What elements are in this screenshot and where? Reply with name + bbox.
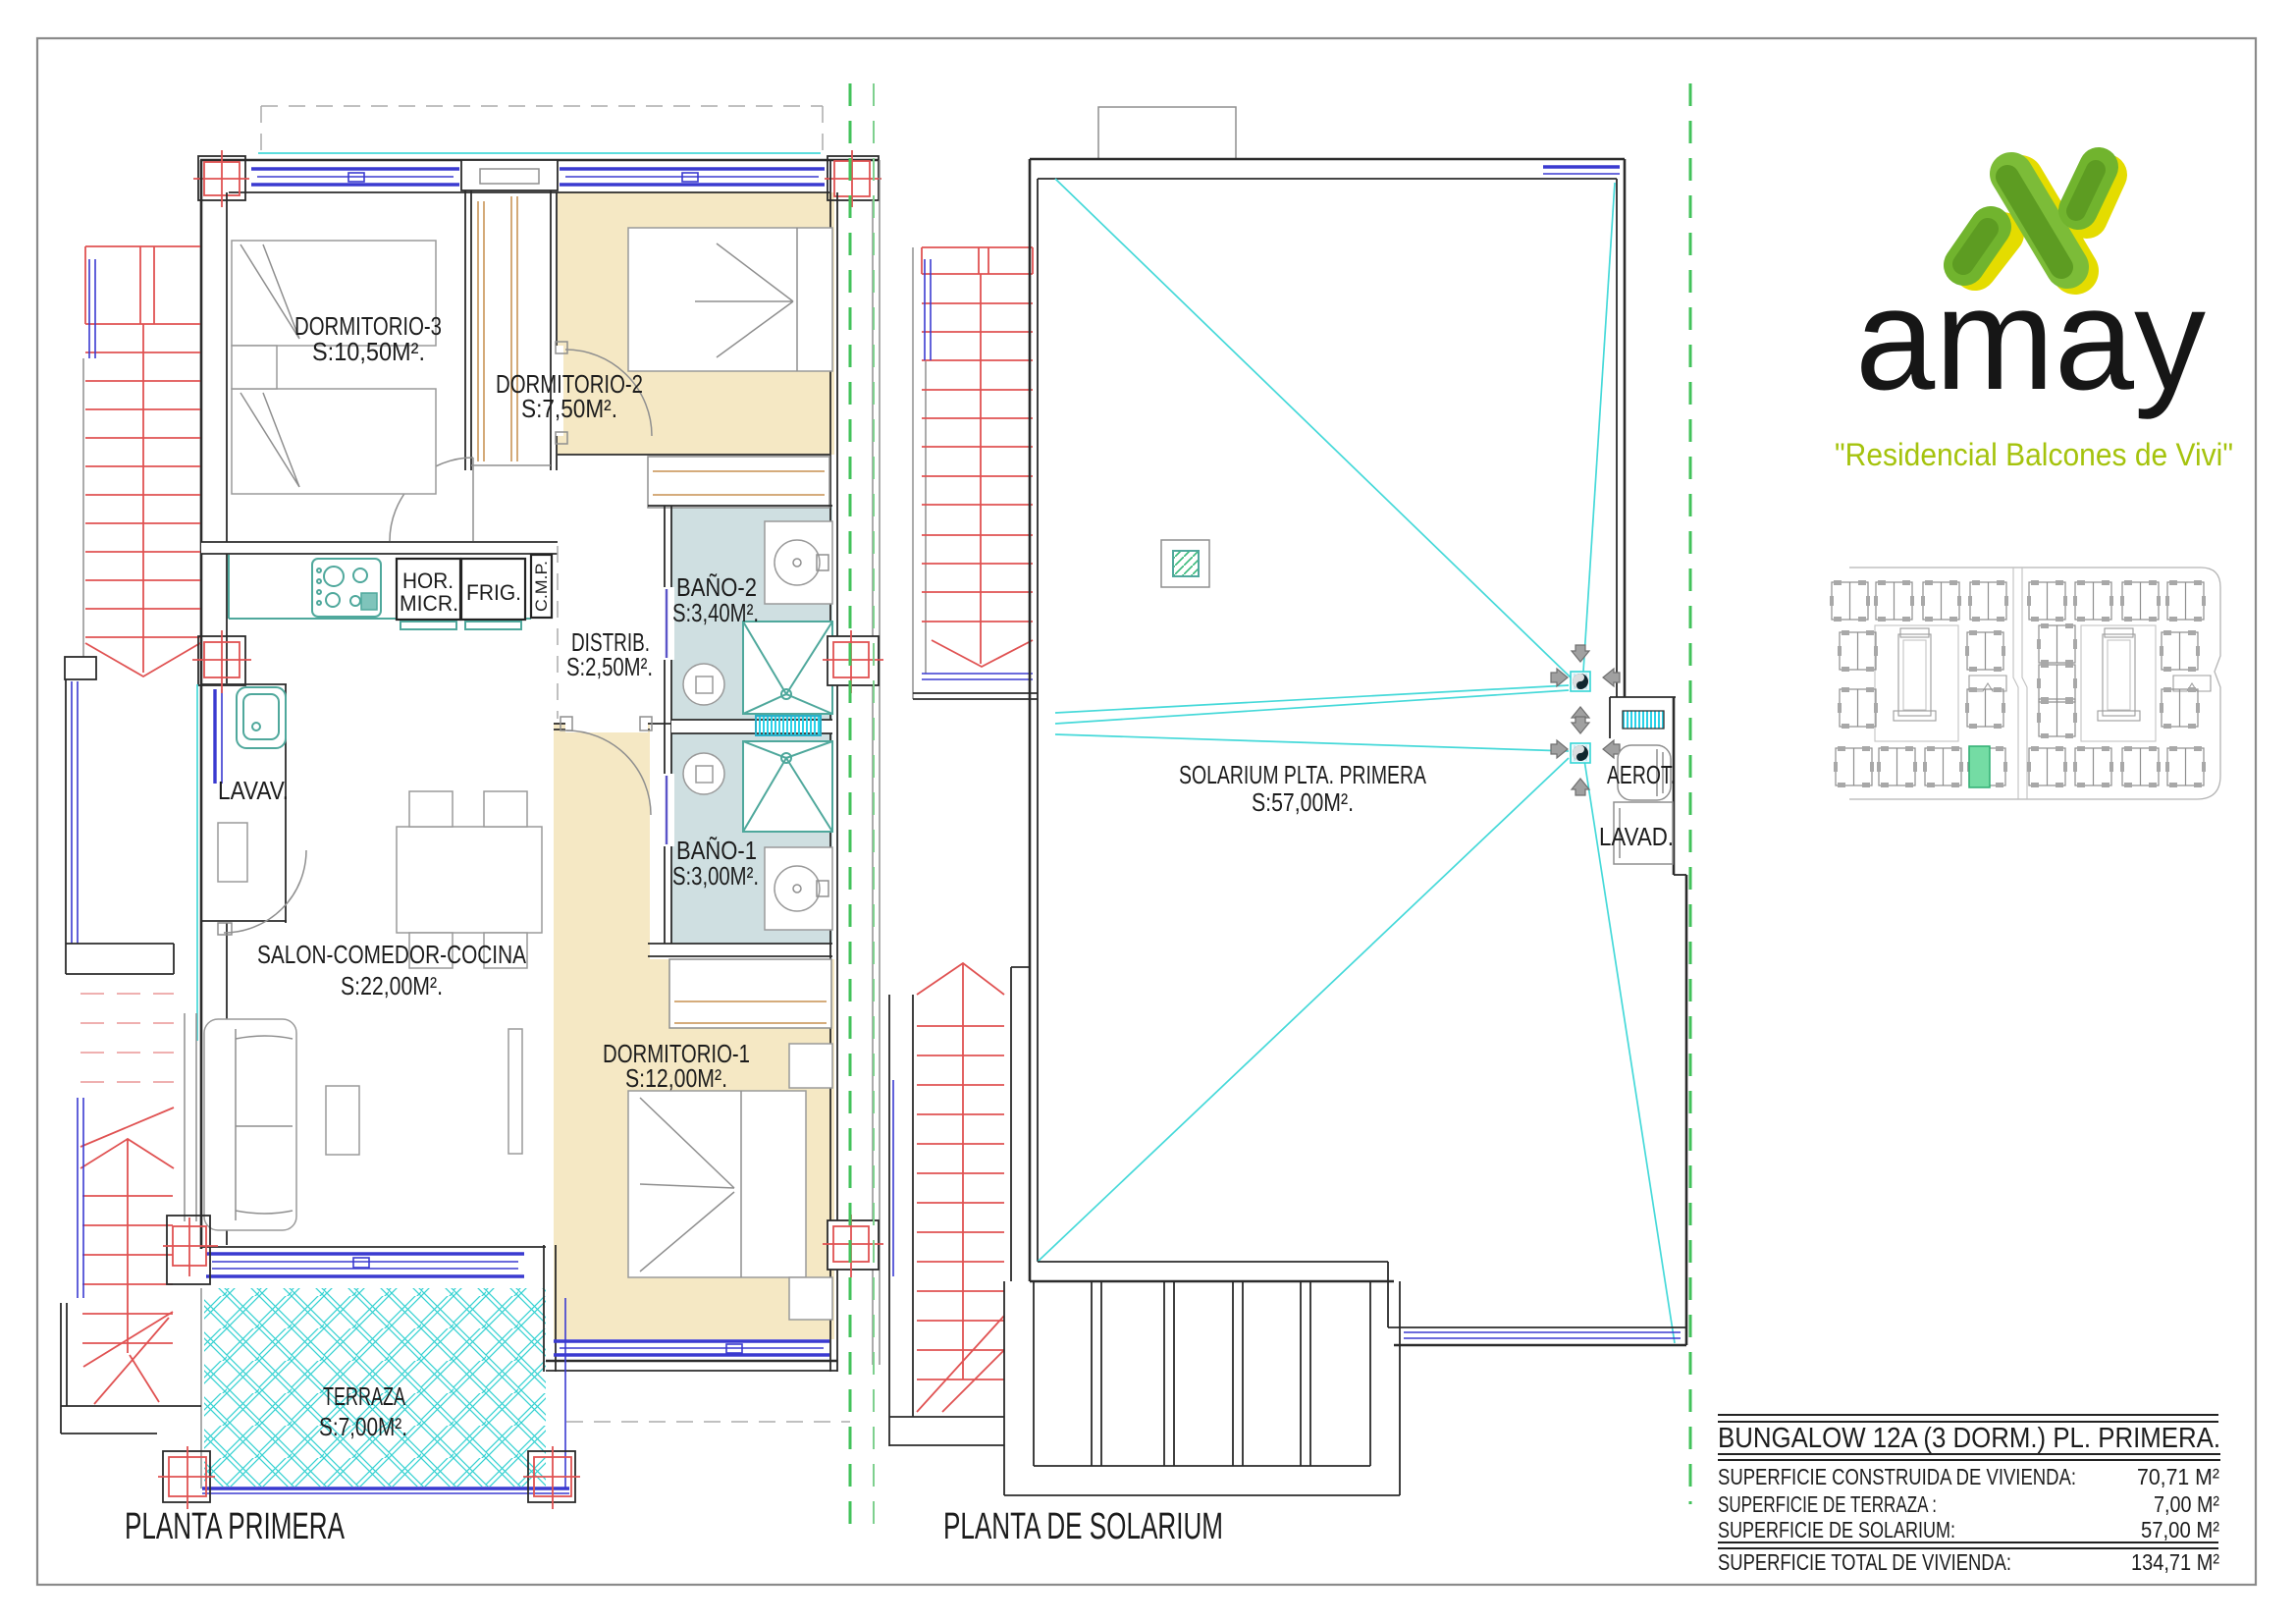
svg-text:"Residencial Balcones de Vivi": "Residencial Balcones de Vivi" [1835,437,2233,472]
svg-text:C.M.P.: C.M.P. [532,561,551,612]
svg-text:HOR.: HOR. [402,568,454,593]
svg-text:S:2,50M².: S:2,50M². [566,652,653,681]
svg-text:FRIG.: FRIG. [466,580,521,605]
svg-text:SUPERFICIE TOTAL DE VIVIENDA:: SUPERFICIE TOTAL DE VIVIENDA: [1718,1549,2011,1575]
svg-text:MICR.: MICR. [400,591,458,616]
svg-text:S:10,50M².: S:10,50M². [312,337,425,366]
svg-text:SUPERFICIE CONSTRUIDA DE VIVIE: SUPERFICIE CONSTRUIDA DE VIVIENDA: [1718,1464,2076,1489]
svg-text:S:57,00M².: S:57,00M². [1252,787,1354,817]
svg-text:BUNGALOW 12A (3 DORM.) PL. PR: BUNGALOW 12A (3 DORM.) PL. PRIMERA. [1718,1423,2220,1454]
svg-text:SOLARIUM PLTA. PRIMERA: SOLARIUM PLTA. PRIMERA [1179,760,1426,789]
svg-text:TERRAZA: TERRAZA [323,1381,405,1411]
svg-text:57,00 M²: 57,00 M² [2141,1517,2219,1542]
svg-text:S:7,00M².: S:7,00M². [319,1412,407,1441]
svg-text:LAVAV.: LAVAV. [218,776,289,805]
svg-text:LAVAD.: LAVAD. [1599,822,1674,851]
svg-text:7,00 M²: 7,00 M² [2154,1491,2219,1517]
svg-text:SALON-COMEDOR-COCINA: SALON-COMEDOR-COCINA [257,940,527,969]
svg-text:70,71 M²: 70,71 M² [2137,1464,2219,1489]
svg-text:S:3,40M².: S:3,40M². [672,598,759,627]
svg-text:S:12,00M².: S:12,00M². [625,1063,727,1093]
svg-text:AEROT.: AEROT. [1607,760,1676,789]
svg-text:PLANTA DE SOLARIUM: PLANTA DE SOLARIUM [943,1506,1223,1547]
svg-text:amay: amay [1855,258,2206,420]
svg-text:PLANTA PRIMERA: PLANTA PRIMERA [125,1506,345,1547]
svg-text:S:7,50M².: S:7,50M². [521,394,617,423]
svg-text:134,71 M²: 134,71 M² [2131,1549,2219,1575]
svg-text:S:3,00M².: S:3,00M². [672,861,759,891]
svg-text:SUPERFICIE DE TERRAZA :: SUPERFICIE DE TERRAZA : [1718,1491,1937,1517]
svg-text:SUPERFICIE DE SOLARIUM:: SUPERFICIE DE SOLARIUM: [1718,1517,1955,1542]
svg-text:S:22,00M².: S:22,00M². [341,971,443,1001]
